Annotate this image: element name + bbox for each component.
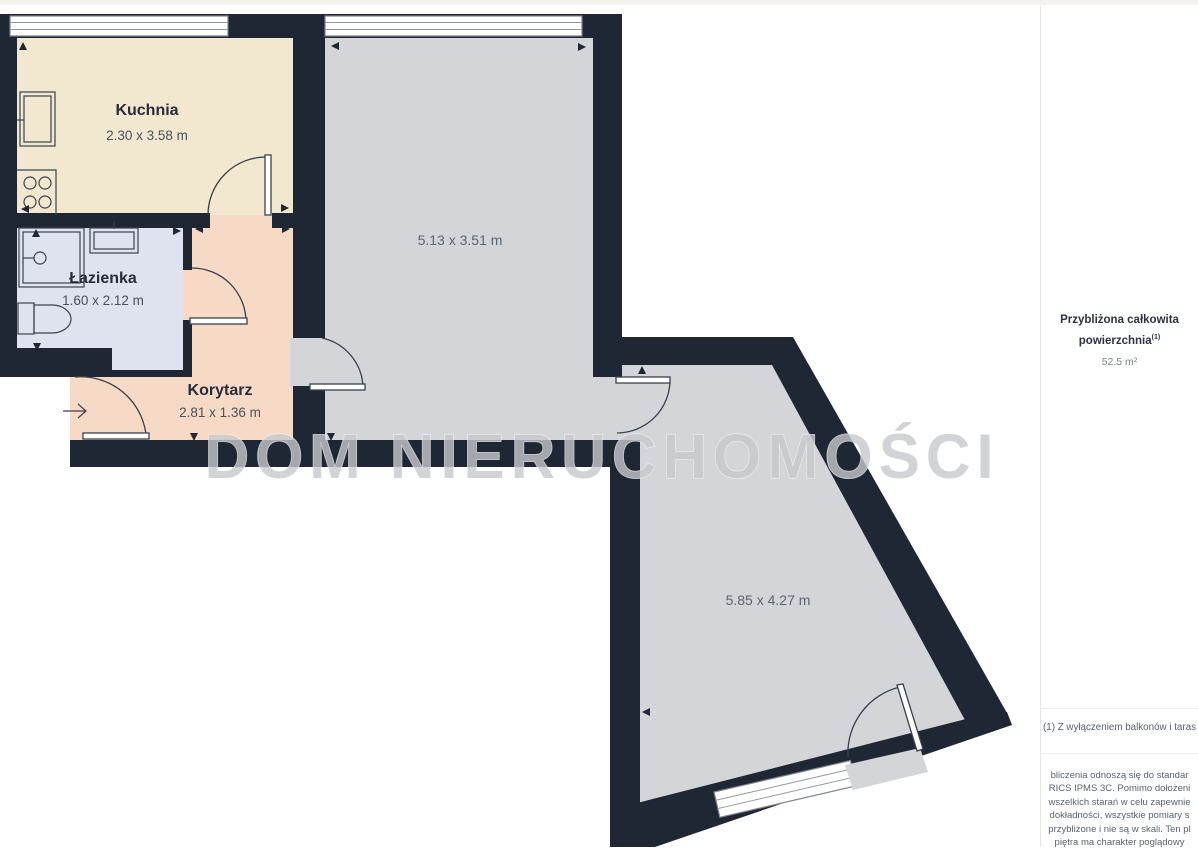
panel-divider-top <box>1041 708 1198 709</box>
total-area-title-line2: powierzchnia <box>1079 335 1152 347</box>
disclaimer-line: RICS IPMS 3C. Pomimo dołożeni <box>1049 782 1191 795</box>
total-area-value: 52.5 m² <box>1041 356 1198 368</box>
disclaimer-line: piętra ma charakter poglądowy <box>1055 836 1185 849</box>
wall-bath-bottom-right <box>105 370 192 377</box>
kitchen-window-icon <box>10 16 228 36</box>
top-room-dims: 5.13 x 3.51 m <box>418 232 503 248</box>
bathroom-dims: 1.60 x 2.12 m <box>62 293 144 308</box>
watermark-text: DOM NIERUCHOMOŚCI <box>205 422 1000 492</box>
corridor-dims: 2.81 x 1.36 m <box>179 405 261 420</box>
corridor-room-doorway-floor <box>290 338 325 388</box>
floorplan: Kuchnia 2.30 x 3.58 m Łazienka 1.60 x 2.… <box>0 0 1040 847</box>
footnote-text: (1) Z wyłączeniem balkonów i taras <box>1041 722 1198 733</box>
wall-midroom-left-upper <box>293 38 325 338</box>
wall-bottomroom-left <box>610 440 640 812</box>
top-room-window-icon <box>325 16 582 36</box>
wall-midroom-right <box>593 14 622 377</box>
info-panel: Przybliżona całkowita powierzchnia(1) 52… <box>1040 0 1198 847</box>
kitchen-label: Kuchnia <box>115 102 178 119</box>
disclaimer-text: bliczenia odnoszą się do standar RICS IP… <box>1041 769 1198 849</box>
disclaimer-line: bliczenia odnoszą się do standar <box>1051 769 1189 782</box>
disclaimer-line: przybliżone i nie są w skali. Ten pl <box>1048 823 1190 836</box>
floorplan-svg: Kuchnia 2.30 x 3.58 m Łazienka 1.60 x 2.… <box>0 0 1040 847</box>
bathroom-label: Łazienka <box>69 270 137 287</box>
wall-kitchen-bottom-a <box>0 213 210 228</box>
bathroom-doorway-floor <box>183 268 192 322</box>
bottom-room-dims: 5.85 x 4.27 m <box>726 592 811 608</box>
wall-bath-right-lower <box>183 320 192 377</box>
wall-bottomroom-top <box>610 337 793 365</box>
panel-divider-bottom <box>1041 753 1198 754</box>
total-area-title-line1: Przybliżona całkowita <box>1060 314 1179 326</box>
wall-bath-right-upper <box>183 228 192 270</box>
corridor-label: Korytarz <box>188 382 253 399</box>
page-top-strip <box>0 0 1198 5</box>
footnote-ref: (1) <box>1152 334 1161 341</box>
disclaimer-line: dokładności, wszystkie pomiary s <box>1050 809 1190 822</box>
wall-bath-bottom-left <box>0 348 112 377</box>
total-area-title: Przybliżona całkowita powierzchnia(1) <box>1041 312 1198 350</box>
disclaimer-line: wszelkich starań w celu zapewnie <box>1048 796 1190 809</box>
wall-left <box>0 14 17 352</box>
kitchen-dims: 2.30 x 3.58 m <box>106 128 188 143</box>
